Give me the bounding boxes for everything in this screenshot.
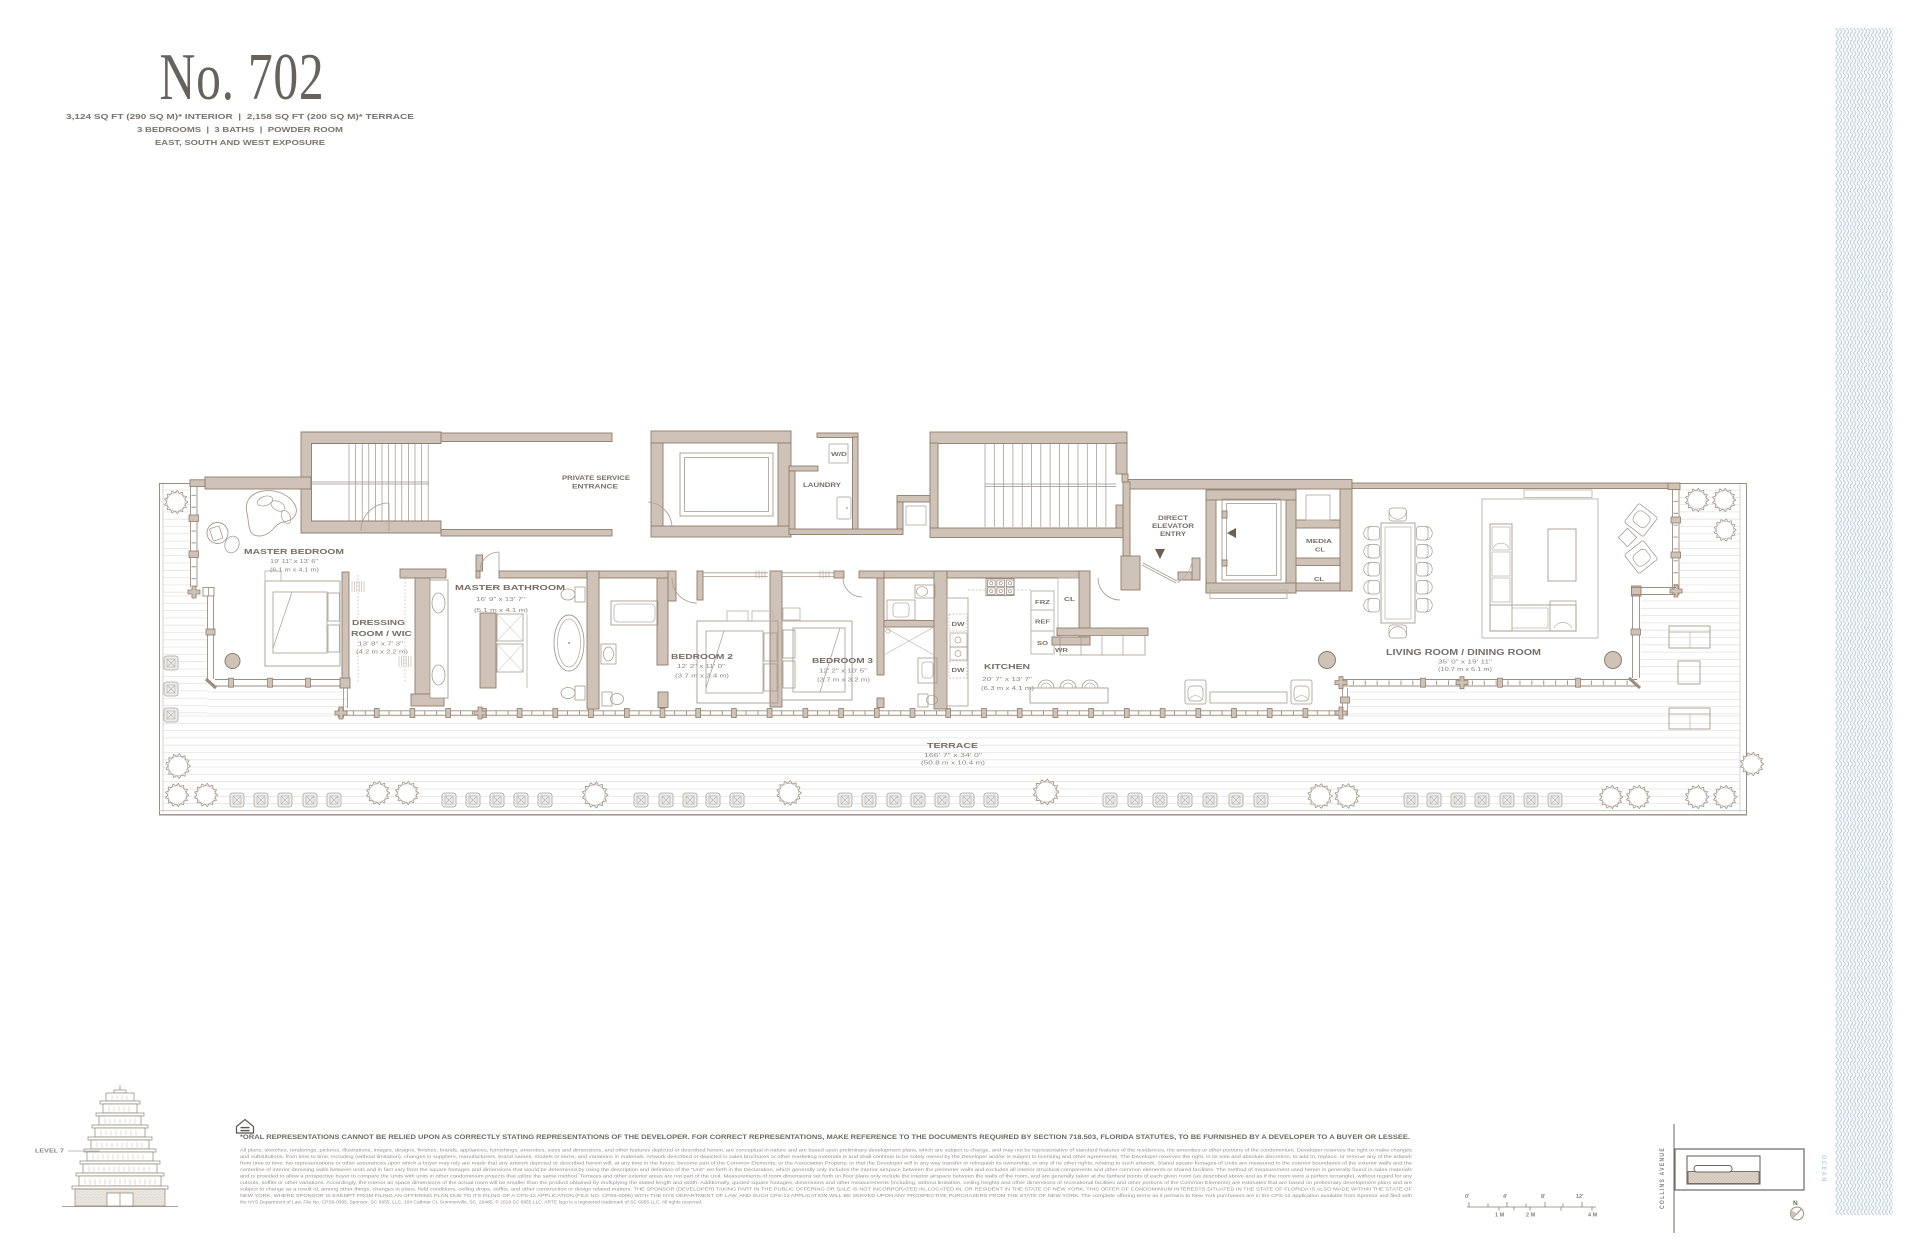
svg-text:subject to change as a result: subject to change as a result of, among … xyxy=(240,1187,1412,1193)
svg-text:and is provided to allow a pro: and is provided to allow a prospective b… xyxy=(240,1174,1413,1180)
svg-text:MASTER BEDROOM: MASTER BEDROOM xyxy=(244,547,344,556)
svg-text:(3.7 m x 3.4 m): (3.7 m x 3.4 m) xyxy=(675,674,729,680)
svg-text:19' 11" x 13' 6": 19' 11" x 13' 6" xyxy=(270,559,318,565)
svg-text:centerline of interior demisin: centerline of interior demising walls be… xyxy=(240,1167,1413,1173)
svg-text:and substitutions, from time t: and substitutions, from time to time, in… xyxy=(240,1154,1413,1160)
svg-text:KITCHEN: KITCHEN xyxy=(984,662,1030,671)
svg-text:W/D: W/D xyxy=(831,452,848,458)
svg-text:2 M: 2 M xyxy=(1526,1213,1536,1219)
svg-text:12' 2" x 10' 5": 12' 2" x 10' 5" xyxy=(819,669,867,675)
svg-text:WR: WR xyxy=(1055,648,1068,654)
svg-text:LIVING ROOM / DINING ROOM: LIVING ROOM / DINING ROOM xyxy=(1386,648,1541,657)
svg-text:ELEVATOR: ELEVATOR xyxy=(1152,524,1195,530)
svg-text:N: N xyxy=(1793,1200,1798,1207)
svg-text:3,124 SQ FT (290 SQ M)* INTERI: 3,124 SQ FT (290 SQ M)* INTERIOR | 2,158… xyxy=(66,112,414,121)
svg-text:TERRACE: TERRACE xyxy=(927,741,978,750)
svg-text:16' 9" x 13' 7": 16' 9" x 13' 7" xyxy=(476,597,525,603)
svg-text:MASTER BATHROOM: MASTER BATHROOM xyxy=(455,583,565,592)
svg-text:MEDIA: MEDIA xyxy=(1306,539,1332,545)
svg-text:(50.8 m x 10.4 m): (50.8 m x 10.4 m) xyxy=(921,761,985,767)
svg-text:DW: DW xyxy=(952,622,965,628)
svg-text:SO: SO xyxy=(1037,641,1048,647)
svg-text:the NYS Department of Law, Fil: the NYS Department of Law, File No. CPS6… xyxy=(240,1199,702,1206)
svg-text:ENTRANCE: ENTRANCE xyxy=(572,485,618,491)
svg-text:BEDROOM 2: BEDROOM 2 xyxy=(671,652,733,661)
svg-text:(10.7 m x 6.1 m): (10.7 m x 6.1 m) xyxy=(1438,667,1492,673)
svg-text:*ORAL REPRESENTATIONS CANNOT B: *ORAL REPRESENTATIONS CANNOT BE RELIED U… xyxy=(240,1134,1410,1141)
svg-text:ROOM / WIC: ROOM / WIC xyxy=(351,629,413,638)
svg-text:NEW YORK, WHERE SPONSOR IS EXE: NEW YORK, WHERE SPONSOR IS EXEMPT FROM F… xyxy=(240,1193,1412,1199)
svg-text:from time to time. No represen: from time to time. No representations or… xyxy=(240,1161,1412,1167)
svg-text:12' 2" x 11' 0": 12' 2" x 11' 0" xyxy=(677,664,725,670)
svg-text:DW: DW xyxy=(952,668,965,674)
svg-text:PRIVATE SERVICE: PRIVATE SERVICE xyxy=(562,476,630,482)
svg-text:20' 7" x 13' 7": 20' 7" x 13' 7" xyxy=(982,677,1032,683)
svg-text:0': 0' xyxy=(1465,1194,1470,1200)
svg-text:(4.2 m x 2.2 m): (4.2 m x 2.2 m) xyxy=(356,650,408,656)
svg-text:All plans, sketches, rendering: All plans, sketches, renderings, picture… xyxy=(240,1148,1413,1154)
svg-text:(6.3 m x 4.1 m): (6.3 m x 4.1 m) xyxy=(981,686,1034,692)
svg-text:LAUNDRY: LAUNDRY xyxy=(803,483,841,489)
svg-text:OCEAN: OCEAN xyxy=(1820,1155,1826,1183)
svg-text:BEDROOM 3: BEDROOM 3 xyxy=(812,656,873,665)
svg-text:CL: CL xyxy=(1064,597,1076,603)
svg-text:DIRECT: DIRECT xyxy=(1158,516,1188,522)
svg-text:EAST, SOUTH AND WEST EXPOSURE: EAST, SOUTH AND WEST EXPOSURE xyxy=(155,138,325,147)
svg-text:1 M: 1 M xyxy=(1495,1213,1505,1219)
svg-text:(3.7 m x 3.2 m): (3.7 m x 3.2 m) xyxy=(817,678,870,684)
svg-text:166' 7" x 34' 0": 166' 7" x 34' 0" xyxy=(924,753,982,759)
svg-text:4': 4' xyxy=(1503,1194,1508,1200)
svg-text:35' 0" x 19' 11": 35' 0" x 19' 11" xyxy=(1438,660,1492,666)
svg-text:REF: REF xyxy=(1035,620,1050,626)
svg-text:ENTRY: ENTRY xyxy=(1160,532,1186,538)
svg-text:LEVEL 7: LEVEL 7 xyxy=(35,1149,64,1155)
svg-text:cutouts, soffits or other vari: cutouts, soffits or other variations. Ac… xyxy=(240,1180,1412,1186)
svg-text:13' 8" x 7' 3": 13' 8" x 7' 3" xyxy=(358,642,403,648)
svg-text:FRZ: FRZ xyxy=(1035,600,1051,606)
svg-text:4 M: 4 M xyxy=(1588,1213,1598,1219)
svg-text:3 BEDROOMS | 3 BATHS | POW: 3 BEDROOMS | 3 BATHS | POWDER ROOM xyxy=(137,125,343,134)
svg-text:COLLINS AVENUE: COLLINS AVENUE xyxy=(1660,1147,1666,1209)
svg-text:8': 8' xyxy=(1541,1194,1546,1200)
svg-text:DRESSING: DRESSING xyxy=(352,618,405,627)
svg-text:CL: CL xyxy=(1315,548,1326,554)
svg-text:(6.1 m x 4.1 m): (6.1 m x 4.1 m) xyxy=(270,568,319,574)
svg-text:CL: CL xyxy=(1314,577,1325,583)
svg-text:12': 12' xyxy=(1576,1194,1584,1200)
svg-text:No. 702: No. 702 xyxy=(160,39,325,114)
